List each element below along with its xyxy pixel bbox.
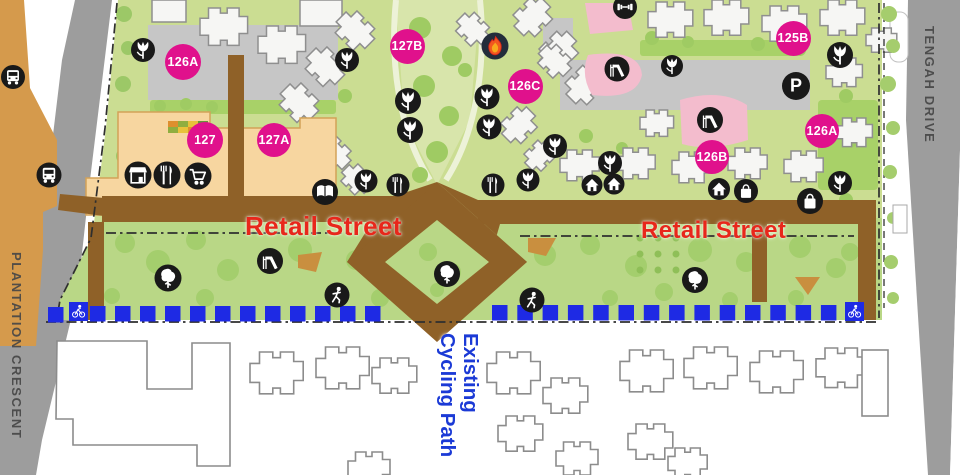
retail-street-label-west: Retail Street — [245, 211, 402, 242]
block-badge-126A: 126A — [165, 44, 201, 80]
cart-icon — [185, 163, 212, 190]
flower-icon — [335, 48, 359, 72]
block-badge-127: 127 — [187, 122, 223, 158]
book-icon — [312, 179, 338, 205]
block-badge-127B: 127B — [390, 29, 425, 64]
flower-icon — [517, 169, 540, 192]
retail-street-label-east: Retail Street — [641, 217, 786, 245]
svg-text:P: P — [790, 75, 802, 95]
cycling-path-square — [821, 305, 837, 321]
cycling-path-square — [365, 306, 381, 322]
flower-icon — [395, 88, 421, 114]
slide-icon — [257, 248, 283, 274]
flower-icon — [475, 85, 500, 110]
flower-icon — [397, 117, 423, 143]
cutlery-icon — [154, 162, 181, 189]
bus-icon — [1, 65, 25, 89]
house-icon — [582, 175, 603, 196]
cycling-path-square — [492, 305, 508, 321]
parking-icon: P — [782, 72, 810, 100]
bus-bay — [893, 205, 907, 233]
tree-icon — [682, 267, 708, 293]
flower-icon — [355, 170, 378, 193]
flower-icon — [598, 151, 622, 175]
house-icon — [604, 174, 625, 195]
store-icon — [125, 162, 152, 189]
block-badge-126A: 126A — [805, 114, 839, 148]
cycling-path-square — [796, 305, 812, 321]
flower-icon — [661, 55, 683, 77]
existing-cycling-path-label: Existing Cycling Path — [435, 333, 481, 457]
cycling-path-square — [140, 306, 156, 322]
cycling-path-square — [568, 305, 584, 321]
cycling-path-square — [290, 306, 306, 322]
cycling-path-square — [543, 305, 559, 321]
bus-icon — [37, 163, 62, 188]
cycling-path-square — [315, 306, 331, 322]
cycling-path-square — [340, 306, 356, 322]
cycling-path-square — [215, 306, 231, 322]
plantation-crescent-road-label: PLANTATION CRESCENT — [9, 252, 24, 439]
tengah-drive-road-label: TENGAH DRIVE — [922, 26, 937, 143]
flame-icon — [482, 33, 509, 60]
flower-icon — [827, 42, 853, 68]
cyclist-marker-icon — [69, 302, 88, 321]
block-badge-126B: 126B — [695, 140, 729, 174]
cyclist-marker-icon — [845, 302, 864, 321]
runner-icon — [325, 283, 350, 308]
cycling-path-square — [694, 305, 710, 321]
flower-icon — [543, 134, 567, 158]
cycling-path-square — [190, 306, 206, 322]
cycling-label-line2: Cycling Path — [435, 333, 458, 457]
block-badge-125B: 125B — [776, 21, 811, 56]
cycling-path-square — [619, 305, 635, 321]
runner-icon — [520, 288, 545, 313]
cycling-path-square — [593, 305, 609, 321]
bag-icon — [797, 188, 823, 214]
tree-icon — [434, 261, 460, 287]
cycling-path-square — [240, 306, 256, 322]
cycling-path-square — [644, 305, 660, 321]
cycling-path-square — [669, 305, 685, 321]
slide-icon — [697, 107, 723, 133]
cutlery-icon — [482, 174, 505, 197]
cycling-path-square — [720, 305, 736, 321]
cycling-label-line1: Existing — [458, 333, 481, 457]
cycling-path-square — [265, 306, 281, 322]
cycling-path-square — [770, 305, 786, 321]
cycling-path-square — [90, 306, 106, 322]
cycling-path-square — [115, 306, 131, 322]
flower-icon — [828, 171, 852, 195]
tree-icon — [155, 265, 182, 292]
flower-icon — [477, 115, 502, 140]
bag-icon — [734, 179, 758, 203]
cycling-path-square — [165, 306, 181, 322]
house-icon — [708, 178, 730, 200]
site-plan-map: P 126A127127A127B126C125B126B126A Retail… — [0, 0, 960, 475]
cutlery-icon — [387, 174, 410, 197]
flower-icon — [131, 38, 155, 62]
cycling-path-square — [48, 307, 64, 323]
block-badge-127A: 127A — [257, 123, 291, 157]
slide-icon — [605, 57, 630, 82]
cycling-path-square — [745, 305, 761, 321]
block-badge-126C: 126C — [508, 69, 543, 104]
